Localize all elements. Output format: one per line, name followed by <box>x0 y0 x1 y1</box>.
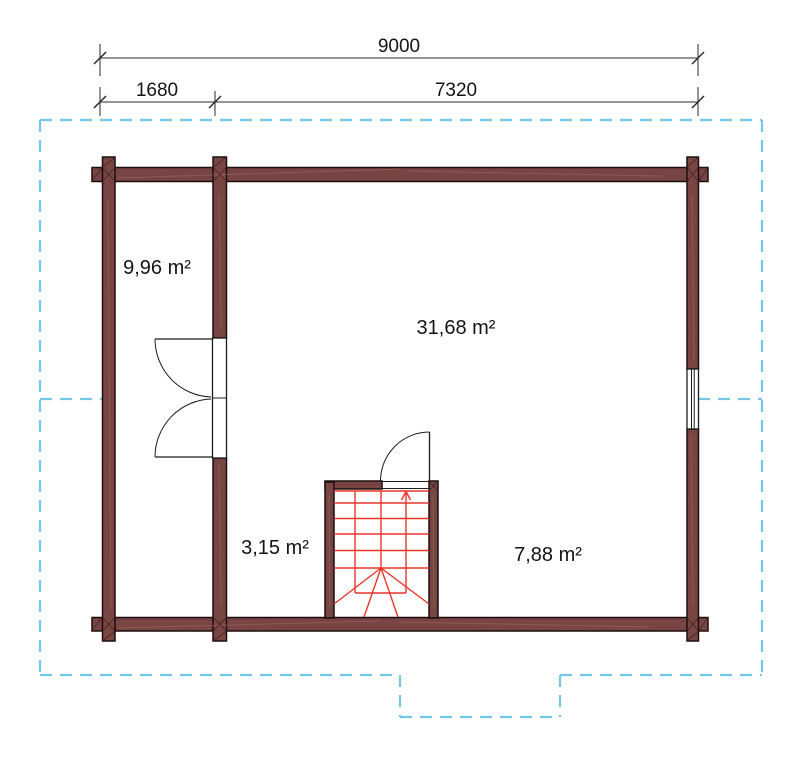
room-area-labels: 9,96 m² 31,68 m² 3,15 m² 7,88 m² <box>123 257 582 566</box>
room-label-right: 7,88 m² <box>514 544 582 566</box>
dimension-annotations: 9000 1680 7320 <box>94 36 704 116</box>
interior-double-door <box>155 338 227 458</box>
room-label-hall: 3,15 m² <box>241 537 309 559</box>
wall-top <box>92 168 708 182</box>
door-swing-arc-top <box>155 339 211 397</box>
window <box>687 369 699 429</box>
room-label-left: 9,96 m² <box>123 257 191 279</box>
stair-door-swing-arc <box>381 432 430 481</box>
window-frame <box>687 369 699 429</box>
wall-grain-streaks <box>108 169 694 628</box>
stair-door <box>381 432 430 489</box>
stair-winder <box>334 568 381 604</box>
staircase <box>334 491 429 617</box>
dimension-label-total: 9000 <box>378 36 420 57</box>
dimension-label-right: 7320 <box>435 80 477 101</box>
wall-right-lower <box>687 429 699 641</box>
door-swing-arc-bottom <box>155 399 211 457</box>
room-label-main: 31,68 m² <box>417 317 496 339</box>
dimension-label-left: 1680 <box>136 80 178 101</box>
wall-left <box>103 157 116 641</box>
wall-bottom <box>92 618 708 632</box>
floor-plan-svg: 9000 1680 7320 <box>0 0 811 759</box>
stair-winder <box>381 568 429 604</box>
floor-plan-canvas: 9000 1680 7320 <box>0 0 811 759</box>
